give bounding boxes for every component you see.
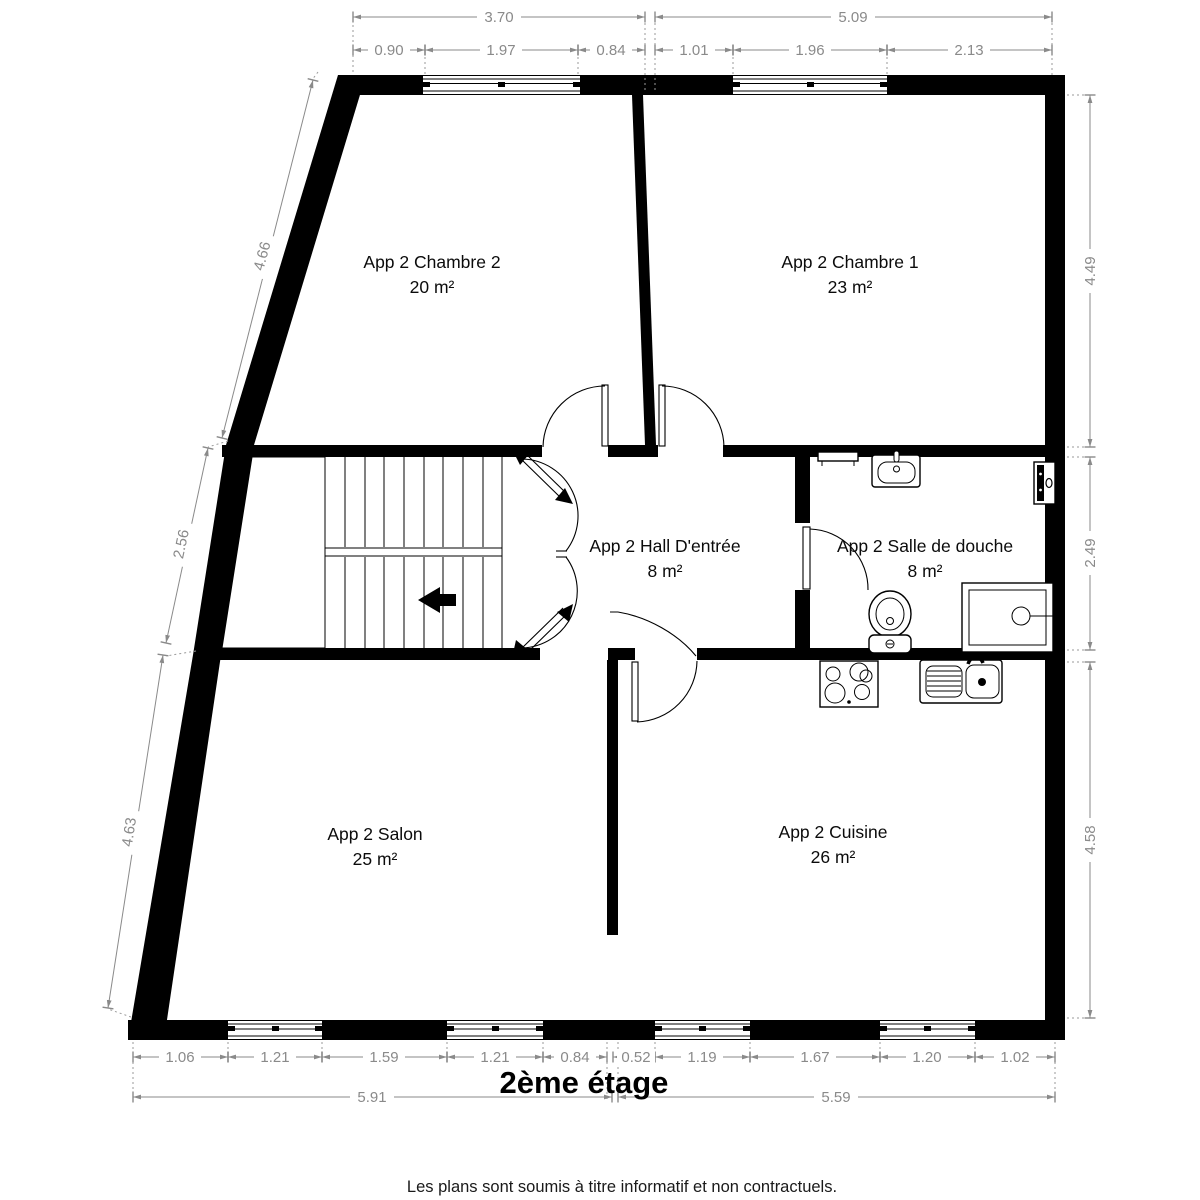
room-area-hall: 8 m² xyxy=(648,561,683,581)
exterior-walls xyxy=(128,75,1065,1040)
dim-label: 0.90 xyxy=(374,42,403,59)
kitchen-fixtures xyxy=(820,657,1002,707)
dim-label: 4.58 xyxy=(1082,825,1099,854)
room-label-salon: App 2 Salon xyxy=(327,824,422,844)
door-swing-icon xyxy=(543,385,608,447)
room-label-douche: App 2 Salle de douche xyxy=(837,536,1013,556)
door-swing-icon xyxy=(659,385,724,447)
window-icon xyxy=(228,1021,322,1039)
dim-label: 0.84 xyxy=(560,1049,589,1066)
dim-label: 0.52 xyxy=(621,1049,650,1066)
dim-label: 0.84 xyxy=(596,42,625,59)
room-label-chambre2: App 2 Chambre 2 xyxy=(363,252,500,272)
sink-icon xyxy=(872,451,920,487)
dim-label: 1.01 xyxy=(679,42,708,59)
dim-label: 1.21 xyxy=(480,1049,509,1066)
dim-label: 1.02 xyxy=(1000,1049,1029,1066)
dim-label: 1.19 xyxy=(687,1049,716,1066)
floor-plan-page: 3.70 5.09 0.90 1.97 0.84 1.01 1.96 2.13 … xyxy=(0,0,1200,1200)
page-title: 2ème étage xyxy=(500,1065,669,1100)
disclaimer-text: Les plans sont soumis à titre informatif… xyxy=(407,1178,837,1196)
window-icon xyxy=(447,1021,543,1039)
dim-label: 5.59 xyxy=(821,1089,850,1106)
room-area-chambre2: 20 m² xyxy=(410,277,455,297)
extension-lines xyxy=(108,18,1093,1100)
room-labels: App 2 Chambre 2 20 m² App 2 Chambre 1 23… xyxy=(327,252,1013,869)
door-swing-icon xyxy=(512,557,577,658)
room-label-cuisine: App 2 Cuisine xyxy=(779,822,888,842)
dim-label: 4.49 xyxy=(1082,256,1099,285)
boiler-icon xyxy=(1034,462,1055,504)
dim-label: 1.96 xyxy=(795,42,824,59)
window-icon xyxy=(880,1021,975,1039)
room-label-chambre1: App 2 Chambre 1 xyxy=(781,252,918,272)
room-area-cuisine: 26 m² xyxy=(811,847,856,867)
windows xyxy=(228,76,975,1039)
dim-label: 2.13 xyxy=(954,42,983,59)
dim-label: 1.67 xyxy=(800,1049,829,1066)
stairs-icon xyxy=(222,457,502,648)
dim-label: 1.21 xyxy=(260,1049,289,1066)
interior-walls xyxy=(205,95,1045,935)
dimension-lines: 3.70 5.09 0.90 1.97 0.84 1.01 1.96 2.13 … xyxy=(108,9,1099,1106)
door-swing-icon xyxy=(512,449,578,551)
room-area-douche: 8 m² xyxy=(908,561,943,581)
radiator-icon xyxy=(818,452,858,466)
kitchen-sink-icon xyxy=(920,657,1002,703)
dim-label: 1.59 xyxy=(369,1049,398,1066)
dim-label: 2.49 xyxy=(1082,538,1099,567)
dim-label: 5.91 xyxy=(357,1089,386,1106)
toilet-icon xyxy=(869,591,911,653)
door-swing-icon xyxy=(610,612,697,722)
dim-label: 1.97 xyxy=(486,42,515,59)
dim-label: 5.09 xyxy=(838,9,867,26)
window-icon xyxy=(655,1021,750,1039)
shower-icon xyxy=(962,583,1053,652)
window-icon xyxy=(733,76,887,94)
window-icon xyxy=(423,76,580,94)
room-area-chambre1: 23 m² xyxy=(828,277,873,297)
dim-label: 2.56 xyxy=(170,528,193,560)
dim-label: 1.06 xyxy=(165,1049,194,1066)
stove-icon xyxy=(820,661,878,707)
room-area-salon: 25 m² xyxy=(353,849,398,869)
dim-label: 4.63 xyxy=(119,816,140,848)
dim-label: 1.20 xyxy=(912,1049,941,1066)
room-label-hall: App 2 Hall D'entrée xyxy=(589,536,740,556)
floor-plan-drawing: 3.70 5.09 0.90 1.97 0.84 1.01 1.96 2.13 … xyxy=(0,0,1200,1200)
dim-label: 3.70 xyxy=(484,9,513,26)
dim-label: 4.66 xyxy=(250,240,274,273)
